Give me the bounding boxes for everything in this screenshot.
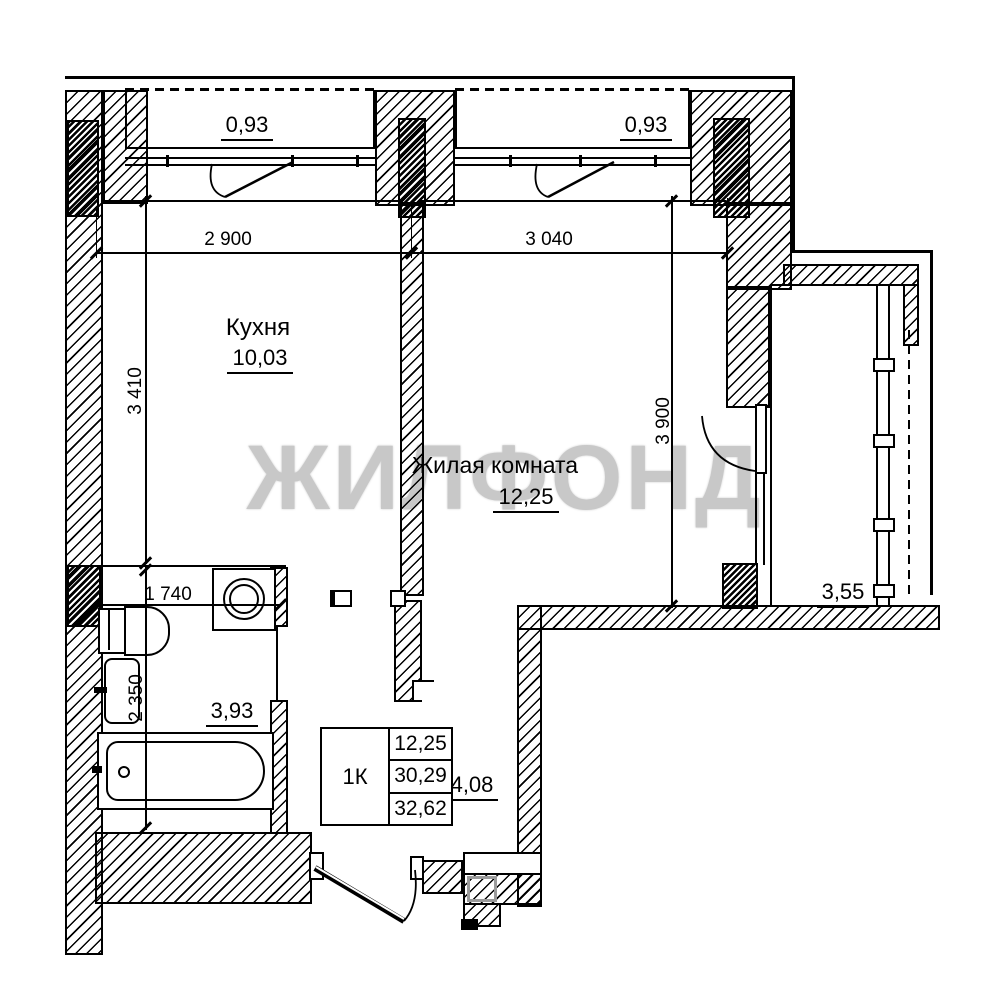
kitchen-area: 10,03 xyxy=(190,345,330,374)
living-balcony-door-leaf xyxy=(548,162,614,197)
dim-living-depth: 3 900 xyxy=(653,386,675,456)
window-mullion xyxy=(579,155,582,167)
wall-right-of-entrance xyxy=(422,860,463,894)
wall-dark-bathroom-corner xyxy=(67,565,101,627)
living-label: Жилая комната xyxy=(375,452,615,479)
entrance-door-leaf xyxy=(315,868,404,921)
toilet-bowl xyxy=(124,606,170,656)
apartment-table: 1К 12,25 30,29 32,62 xyxy=(320,727,453,826)
wall-central-upper xyxy=(400,202,424,596)
apartment-area-no-balcony: 30,29 xyxy=(390,761,451,793)
entrance-jamb-right xyxy=(410,856,424,880)
wall-pier-dark-middle xyxy=(398,118,426,218)
balcony3-doorway-line1 xyxy=(755,470,757,565)
balcony1-right-edge xyxy=(373,90,375,149)
entrance-door-leaf-inner xyxy=(316,867,404,919)
floor-plan: ЖИЛФОНД xyxy=(0,0,1000,1000)
bathroom-top-wall xyxy=(95,565,286,567)
wall-jog xyxy=(390,590,406,607)
kitchen-balcony-door-leaf xyxy=(225,162,293,197)
window-mullion xyxy=(166,155,169,167)
wall-bottom-bathroom xyxy=(95,832,312,904)
wall-dark-below-balcony-door xyxy=(722,563,758,609)
apartment-living-area: 12,25 xyxy=(390,729,451,761)
dim-kitchen-width: 2 900 xyxy=(188,229,268,251)
kitchen-window-outer xyxy=(125,157,375,159)
kitchen-label: Кухня xyxy=(188,314,328,342)
wall-balcony-right-strip xyxy=(903,284,919,346)
dim-bathroom-depth: 2 350 xyxy=(126,663,148,733)
balcony2-area: 0,93 xyxy=(596,112,696,141)
balcony1-railing-dashed xyxy=(125,88,375,91)
wall-pier-dark-left xyxy=(67,120,99,217)
balcony3-doorway-line2 xyxy=(763,470,765,565)
wall-left-outer xyxy=(65,90,103,955)
window-mullion xyxy=(509,155,512,167)
wall-balcony-right-top xyxy=(783,264,919,286)
entrance-lintel xyxy=(463,852,542,875)
entrance-threshold-mark xyxy=(461,919,478,930)
bathroom-door-leaf xyxy=(276,625,278,702)
window-mullion xyxy=(291,155,294,167)
balcony3-mullion xyxy=(873,434,895,448)
balcony2-left-edge xyxy=(455,90,457,149)
balcony3-dashed-glazing xyxy=(908,330,910,595)
balcony2-railing-dashed xyxy=(455,88,690,91)
dim-living-width: 3 040 xyxy=(509,229,589,251)
balcony3-left-edge xyxy=(770,286,772,607)
outer-contour-right-upper xyxy=(792,76,795,253)
balcony1-inner-edge xyxy=(125,147,375,149)
bathtub-faucet xyxy=(92,766,102,773)
balcony3-mullion xyxy=(873,358,895,372)
dim-bathroom-width: 1 740 xyxy=(128,584,208,606)
outer-contour-top xyxy=(65,76,795,79)
bathroom-area: 3,93 xyxy=(182,698,282,727)
toilet-tank xyxy=(98,608,126,654)
kitchen-window-inner xyxy=(125,164,375,166)
outer-contour-step xyxy=(792,250,933,253)
apartment-type: 1К xyxy=(322,729,390,824)
wall-living-right xyxy=(726,286,770,408)
window-mullion xyxy=(654,155,657,167)
balcony3-top-edge xyxy=(770,284,917,286)
entrance-frame-gray xyxy=(467,876,497,902)
balcony3-area: 3,55 xyxy=(793,579,893,608)
toilet-tank-divider xyxy=(108,610,110,650)
dim-kitchen-depth: 3 410 xyxy=(125,356,147,426)
balcony3-door-slab xyxy=(755,404,767,474)
window-mullion xyxy=(356,155,359,167)
washing-machine-drum-inner xyxy=(229,584,259,614)
outer-contour-right-lower xyxy=(930,250,933,595)
electric-panel-symbol xyxy=(330,590,352,607)
kitchen-balcony-door-arc xyxy=(211,164,225,197)
living-area: 12,25 xyxy=(406,484,646,513)
wall-pier-dark-right xyxy=(713,118,750,218)
entrance-jamb-left xyxy=(309,852,324,880)
watermark: ЖИЛФОНД xyxy=(235,428,775,532)
balcony1-left-edge xyxy=(125,90,127,149)
sink-faucet xyxy=(94,687,107,693)
balcony3-mullion xyxy=(873,518,895,532)
balcony1-area: 0,93 xyxy=(197,112,297,141)
bathtub-drain xyxy=(118,766,130,778)
apartment-total-area: 32,62 xyxy=(390,794,451,824)
wall-notch xyxy=(412,680,434,700)
balcony2-inner-edge xyxy=(455,147,690,149)
living-balcony-door-arc xyxy=(535,164,548,197)
living-top-face xyxy=(420,200,726,202)
